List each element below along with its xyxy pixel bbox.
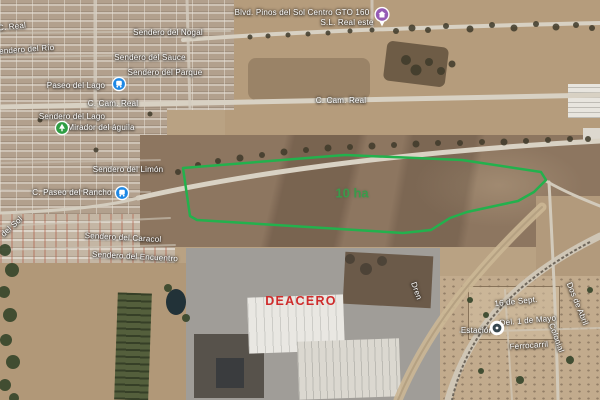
street-label: Sendero del Nogal (133, 29, 203, 37)
dirt-yard (343, 252, 434, 309)
bus-stop-icon[interactable] (115, 186, 130, 201)
boulevard-label-line2: S.L. Real este (320, 19, 373, 27)
station-marker-icon[interactable] (490, 321, 505, 336)
dirt-patch-topright (383, 40, 449, 87)
poi-label: Mirador del águila (67, 124, 134, 132)
orchard-strip (114, 292, 152, 400)
satellite-map[interactable]: C. Real Sendero del Río Paseo del Lago S… (0, 0, 600, 400)
lodging-pin-icon[interactable] (374, 7, 391, 28)
fields-bottomleft (0, 263, 200, 400)
street-label: C. Cam. Real (316, 97, 366, 105)
station-label: Estación (461, 327, 493, 335)
street-label: C. Paseo del Rancho (32, 189, 111, 197)
dirt-patch-topcenter (248, 58, 370, 100)
site-name-label: DEACERO (265, 294, 337, 308)
street-label: C. Cam. Real (88, 100, 138, 108)
poi-blue-icon[interactable] (112, 77, 127, 92)
warehouse-topright (568, 84, 600, 118)
pond (166, 289, 186, 315)
parcel-area-label: 10 ha (335, 186, 368, 201)
industrial-complex (186, 248, 440, 400)
warehouse-topright-small (583, 128, 600, 140)
boulevard-label: Blvd. Pinos del Sol Centro GTO 160 (235, 9, 370, 17)
street-label: Sendero del Sauce (114, 54, 185, 62)
street-label: Sendero del Limón (93, 166, 164, 174)
factory-roof-2 (297, 338, 401, 400)
street-label: Sendero del Lago (39, 113, 105, 121)
street-label: Paseo del Lago (47, 82, 105, 90)
park-marker-icon[interactable] (55, 121, 70, 136)
street-label: Sendero del Parque (128, 69, 203, 77)
industrial-dark-spot (216, 358, 244, 388)
